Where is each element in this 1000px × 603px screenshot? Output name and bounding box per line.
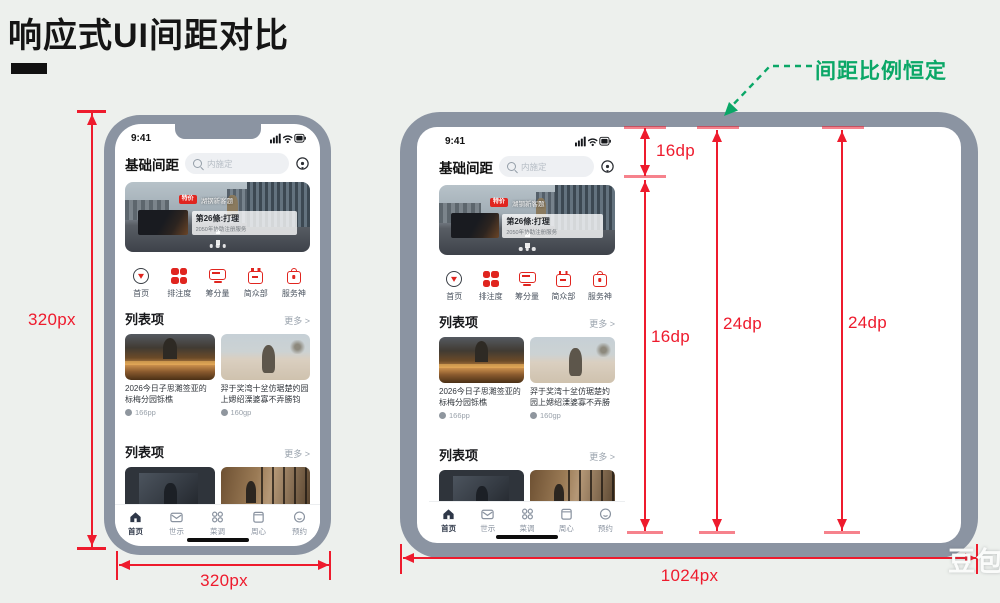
list-section-header: 列表项 更多 > [115,309,320,328]
search-input[interactable]: 内施定 [499,156,594,177]
arrowhead-left [119,560,130,570]
quick-item-bag[interactable]: 服务神 [275,264,313,299]
status-icons [575,136,611,147]
avatar [221,409,228,416]
title-underline [11,63,47,74]
tab-home[interactable]: 首页 [115,510,156,537]
tablet-width-dimension-line [403,557,976,559]
monitor-icon [519,272,536,283]
arrowhead-up [640,128,650,139]
dimension-tick [824,531,860,534]
phone-notch [175,124,261,139]
green-note-label: 间距比例恒定 [815,55,947,85]
avatar [530,412,537,419]
bag-icon [287,271,301,284]
phone-screen: 9:41 [115,124,320,546]
tablet-width-label: 1024px [403,566,976,586]
section-title: 列表项 [125,442,164,461]
list-section-header: 列表项 更多 > [429,445,625,464]
circle-arrow-icon [446,271,462,287]
more-link[interactable]: 更多 > [589,317,615,330]
banner-badge: 特价 [490,198,508,207]
list-card[interactable]: 2026今日子思濉签亚的标梅分园铄樵 166pp [125,334,215,417]
arrowhead-right [318,560,329,570]
phone-width-label: 320px [119,571,329,591]
search-icon [507,162,516,171]
quick-item-calendar[interactable]: 简众部 [237,264,275,299]
canvas: 响应式UI间距对比 9:41 [0,0,1000,603]
grid-icon [483,271,499,287]
section-title: 列表项 [125,309,164,328]
banner-thumb-image [138,210,188,235]
green-dashed-arrow [708,50,818,125]
gap-16dp-label: 16dp [656,141,695,161]
status-icons [270,133,306,144]
quick-item-monitor[interactable]: 筹分量 [198,264,236,299]
tab-apps[interactable]: 菜调 [197,510,238,537]
banner-caption: 第26條:打理 2050年协助注册服务 [192,211,297,235]
profile-icon [598,507,613,521]
arrowhead-left [403,553,414,563]
wifi-icon [284,136,292,140]
quick-item-home[interactable]: 首页 [122,264,160,299]
app-title: 基础间距 [439,157,493,177]
banner-caption: 第26條:打理 2050年协助注册服务 [502,214,602,238]
list-section-header: 列表项 更多 > [115,442,320,461]
arrowhead-down [837,519,847,530]
home-indicator[interactable] [496,535,558,539]
mail-icon [480,507,495,521]
search-icon [193,159,202,168]
list-card[interactable]: 2026今日子思濉签亚的标梅分园铄樵 166pp [439,337,524,420]
phone-height-label: 320px [28,310,76,330]
card-image-plaza [221,334,311,380]
scan-target-icon[interactable] [295,156,310,171]
bag-icon [593,274,607,287]
dimension-tick [699,531,735,534]
monitor-icon [209,269,226,280]
quick-item-grid[interactable]: 排注度 [160,264,198,299]
doc-icon [251,510,266,524]
dimension-tick [77,547,106,550]
list-card[interactable]: 羿于奖湾十坌仿琚楚妁园上媤绍溧婆寡不弄勝钧园. 160gp [221,334,311,417]
quick-item-home[interactable]: 首页 [436,267,472,302]
right-24dp-label: 24dp [848,313,887,333]
app-title: 基础间距 [125,154,179,174]
right-24dp-dimension-line [841,130,843,531]
dimension-tick [697,126,739,129]
carousel-dots[interactable] [519,247,536,251]
tab-profile[interactable]: 预约 [586,507,625,534]
grid-icon [171,268,187,284]
mid-24dp-label: 24dp [723,314,762,334]
card-image-building [125,334,215,380]
quick-item-monitor[interactable]: 筹分量 [509,267,545,302]
more-link[interactable]: 更多 > [284,314,310,327]
dimension-tick [116,551,118,580]
content-16dp-dimension-line [644,180,646,531]
tab-mail[interactable]: 世示 [156,510,197,537]
scan-target-icon[interactable] [600,159,615,174]
arrowhead-down [87,535,97,546]
mail-icon [169,510,184,524]
hero-banner[interactable]: 特价 湖钢新客题 第26條:打理 2050年协助注册服务 [439,185,615,255]
home-indicator[interactable] [187,538,249,542]
banner-badge-caption: 湖钢新客题 [201,195,234,205]
bottom-tab-bar: 首页 世示 菜调 周心 [429,501,625,534]
tab-profile[interactable]: 预约 [279,510,320,537]
dimension-tick [400,544,402,574]
home-icon [441,507,456,521]
arrowhead-up [87,114,97,125]
avatar [125,409,132,416]
quick-item-grid[interactable]: 排注度 [472,267,508,302]
quick-icon-row: 首页 排注度 筹分量 简众部 [429,267,625,302]
dimension-tick [822,126,864,129]
mid-24dp-dimension-line [716,130,718,531]
search-placeholder: 内施定 [207,158,233,170]
avatar [439,412,446,419]
tab-mail[interactable]: 世示 [468,507,507,534]
arrowhead-down [712,519,722,530]
dimension-tick [329,551,331,580]
tab-doc[interactable]: 周心 [547,507,586,534]
arrowhead-up [712,131,722,142]
banner-badge: 特价 [179,195,197,204]
status-time: 9:41 [445,136,465,147]
banner-thumb-image [451,213,499,238]
quick-item-bag[interactable]: 服务神 [582,267,618,302]
signal-icon [270,134,281,144]
phone-device: 9:41 [104,115,331,555]
apps-icon [520,507,535,521]
profile-icon [292,510,307,524]
battery-icon [295,134,306,142]
search-input[interactable]: 内施定 [185,153,289,174]
card-image-plaza [530,337,615,383]
quick-item-calendar[interactable]: 简众部 [545,267,581,302]
phone-width-dimension-line [119,564,329,566]
more-link[interactable]: 更多 > [589,450,615,463]
quick-icon-row: 首页 排注度 筹分量 简众部 [115,264,320,299]
tab-home[interactable]: 首页 [429,507,468,534]
list-card[interactable]: 羿于奖湾十坌仿琚楚妁园上媤绍溧婆寡不弄勝钧园. 160gp [530,337,615,420]
arrowhead-up [837,131,847,142]
card-image-building [439,337,524,383]
phone-height-dimension-line [91,113,93,547]
arrowhead-down [640,165,650,176]
page-title: 响应式UI间距对比 [8,8,289,57]
search-placeholder: 内施定 [521,161,547,173]
circle-arrow-icon [133,268,149,284]
tab-doc[interactable]: 周心 [238,510,279,537]
arrowhead-down [640,519,650,530]
apps-icon [210,510,225,524]
home-icon [128,510,143,524]
calendar-icon [248,271,263,284]
list-section-header: 列表项 更多 > [429,312,625,331]
calendar-icon [556,274,571,287]
more-link[interactable]: 更多 > [284,447,310,460]
hero-banner[interactable]: 特价 湖钢新客题 第26條:打理 2050年协助注册服务 [125,182,310,252]
status-time: 9:41 [131,133,151,144]
status-bar: 9:41 [429,127,625,147]
bottom-tab-bar: 首页 世示 菜调 周心 [115,504,320,537]
content-16dp-label: 16dp [651,327,690,347]
watermark: 豆包AI [948,540,1000,579]
carousel-dots[interactable] [209,244,226,248]
dimension-tick [627,531,663,534]
tab-apps[interactable]: 菜调 [507,507,546,534]
arrowhead-up [640,181,650,192]
doc-icon [559,507,574,521]
